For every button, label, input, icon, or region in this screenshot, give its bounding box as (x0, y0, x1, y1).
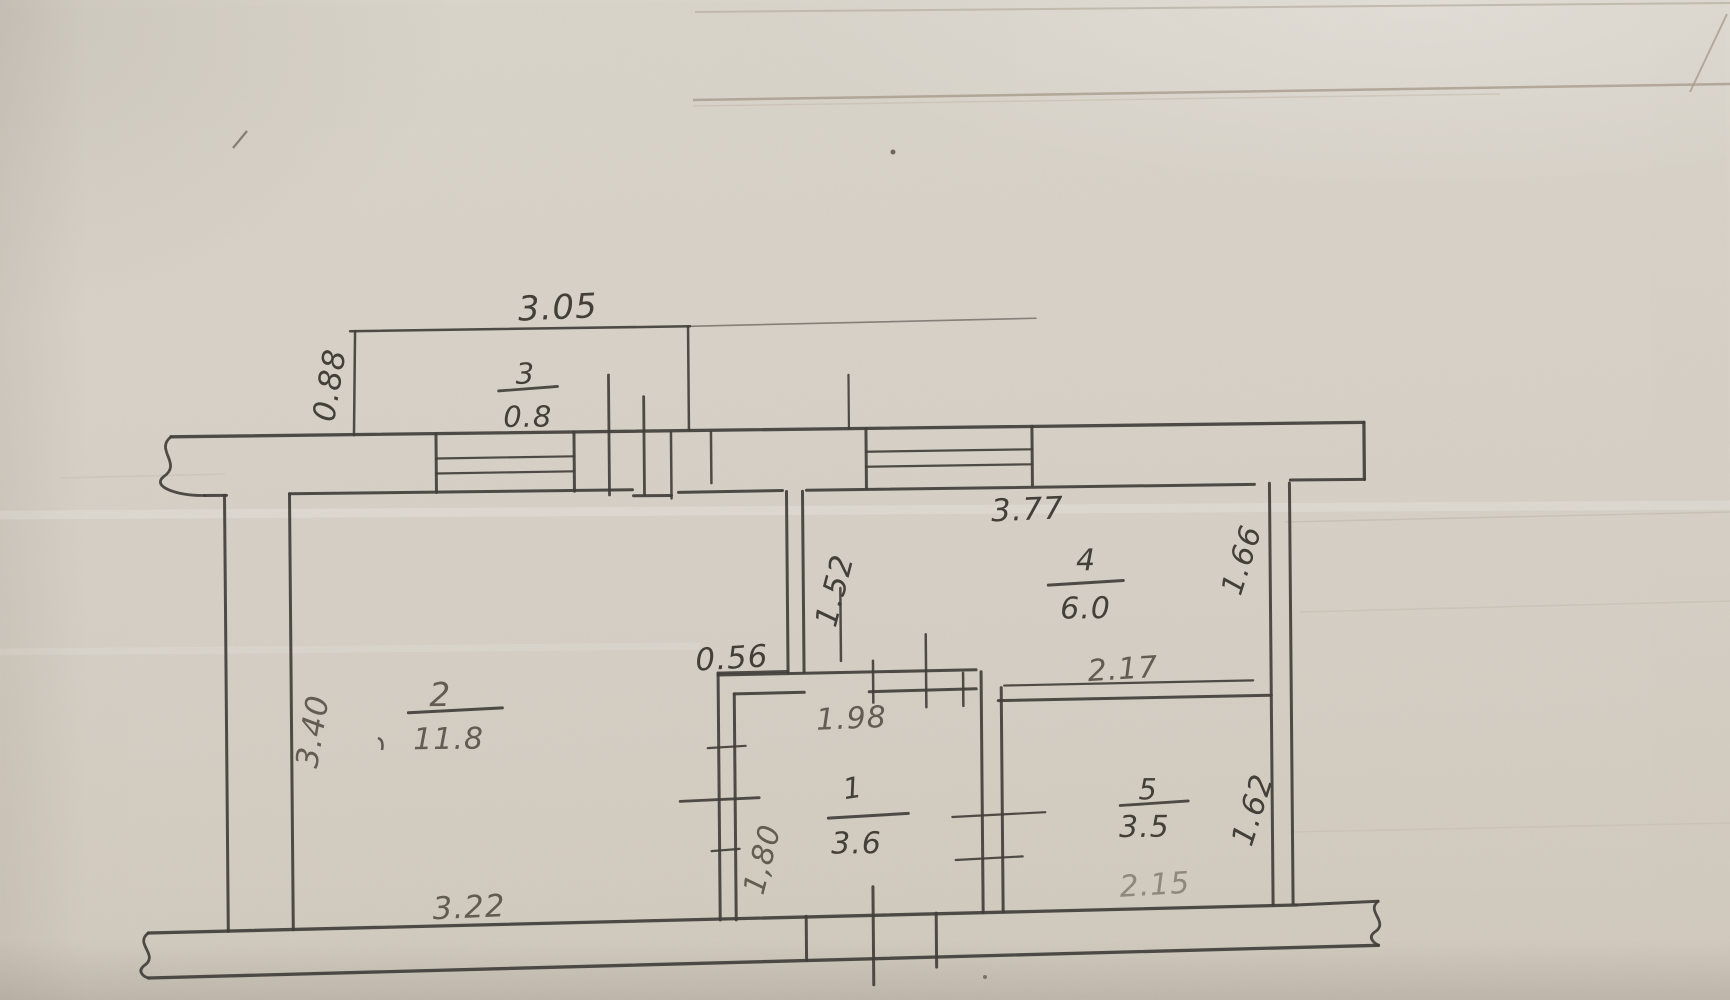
paper-grain-texture (0, 0, 1730, 1000)
floor-plan-svg: 3.05 0.88 3.77 1.66 1.52 0.56 1.98 1,80 … (0, 0, 1730, 1000)
scanned-paper-background: 3.05 0.88 3.77 1.66 1.52 0.56 1.98 1,80 … (0, 0, 1730, 1000)
